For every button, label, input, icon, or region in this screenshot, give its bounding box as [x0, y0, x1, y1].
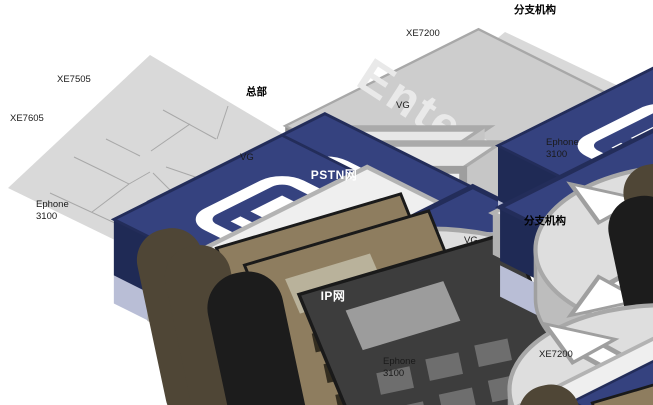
branch-top-vg-label: VG — [396, 100, 410, 112]
branch-top-ephone-label: Ephone 3100 — [546, 137, 579, 161]
branch-bottom-ephone-label-line1: Ephone — [383, 356, 416, 368]
branch-bottom-xe7200-label: XE7200 — [539, 349, 573, 361]
hq-ephone-label-line2: 3100 — [36, 211, 69, 223]
branch-top-xe7200-label: XE7200 — [406, 28, 440, 40]
branch-bottom-ephone-label-line2: 3100 — [383, 368, 416, 380]
hq-vg-label: VG — [240, 152, 254, 164]
hq-region-label: 总部 — [246, 86, 267, 99]
branch-top-ephone-label-line1: Ephone — [546, 137, 579, 149]
xe7505-label: XE7505 — [57, 74, 91, 86]
xe7605-label: XE7605 — [10, 113, 44, 125]
branch-top-ephone-label-line2: 3100 — [546, 149, 579, 161]
pstn-cloud-label: PSTN网 — [288, 166, 380, 183]
branch-bottom-ephone-label: Ephone 3100 — [383, 356, 416, 380]
branch-bottom-region-label: 分支机构 — [524, 215, 566, 228]
hq-ephone-label-line1: Ephone — [36, 199, 69, 211]
network-topology-diagram: Enterprise Office Building — [0, 0, 653, 405]
ip-cloud-label: IP网 — [286, 287, 380, 304]
topology-canvas: Enterprise Office Building — [0, 0, 653, 405]
branch-bottom-vg-label: VG — [464, 235, 478, 247]
hq-ephone-label: Ephone 3100 — [36, 199, 69, 223]
branch-top-region-label: 分支机构 — [514, 4, 556, 17]
